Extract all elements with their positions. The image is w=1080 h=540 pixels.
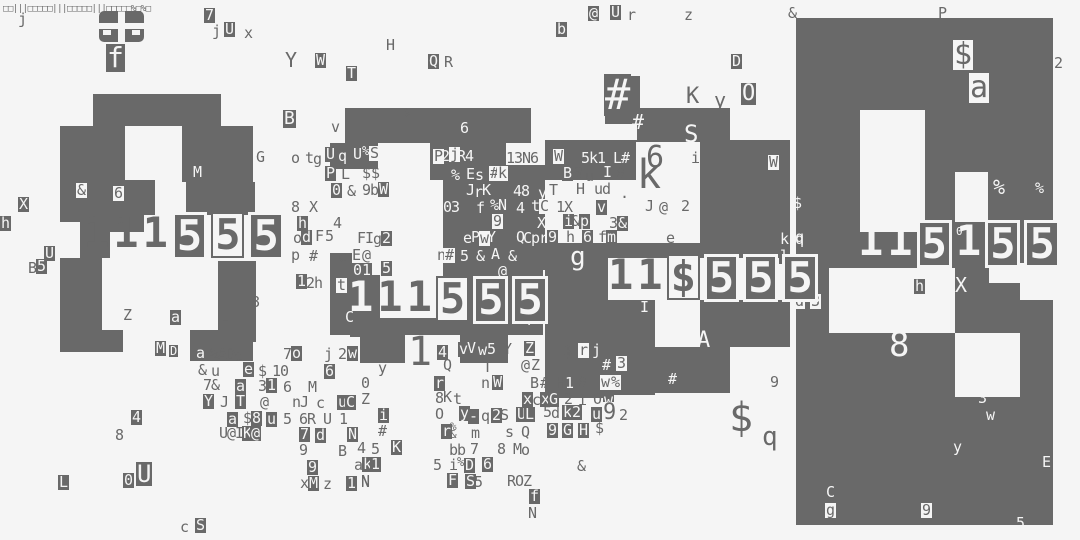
glyph: 9: [602, 402, 617, 424]
glyph: U: [610, 5, 621, 20]
big-digit: 1: [887, 220, 912, 262]
glyph: r: [627, 8, 636, 23]
glyph: 6: [482, 457, 493, 472]
glyph: L: [58, 475, 69, 490]
glyph: v: [331, 120, 340, 135]
glyph: 4: [131, 410, 142, 425]
block-rect: [60, 330, 123, 352]
glyph: 9: [770, 375, 779, 390]
glyph: %: [993, 177, 1005, 197]
glyph: $: [729, 398, 753, 438]
window-grid-bar: [103, 30, 111, 35]
glyph: O: [435, 407, 444, 422]
glyph: y: [714, 90, 726, 110]
glyph: 7: [299, 427, 310, 442]
glyph: 1: [346, 476, 357, 491]
glyph: O: [741, 83, 756, 105]
glyph: 4: [516, 201, 525, 216]
glyph: K: [686, 86, 699, 108]
glyph: L: [524, 407, 535, 422]
glyph: L: [341, 167, 350, 182]
digit-cluster-3: 11$555: [608, 254, 818, 302]
block-rect: [93, 94, 221, 126]
glyph: H: [386, 38, 395, 53]
glyph: F: [447, 473, 458, 488]
glyph: #: [540, 376, 549, 391]
big-digit: 5: [704, 254, 739, 302]
glyph: B: [530, 376, 539, 391]
glyph: j: [592, 343, 601, 358]
glyph: S: [500, 408, 509, 423]
glyph: 9: [307, 460, 318, 475]
glyph: 5: [1016, 516, 1025, 531]
glyph: P: [938, 6, 947, 21]
glyph: k: [779, 232, 790, 247]
glyph: 2: [681, 199, 690, 214]
glyph: J: [220, 395, 229, 410]
glyph: 1: [597, 151, 606, 166]
glyph: 3: [616, 356, 627, 371]
big-digit: 1: [407, 276, 432, 318]
big-digit: 1: [858, 220, 883, 262]
glyph: %: [610, 375, 621, 390]
glyph: g: [825, 503, 836, 518]
glyph: v: [596, 200, 607, 215]
block-rect: [545, 258, 608, 398]
glyph: e: [243, 362, 254, 377]
glyph: U: [323, 412, 332, 427]
glyph: s: [505, 425, 514, 440]
glyph: G: [256, 150, 265, 165]
glyph: @: [250, 426, 261, 441]
glyph: 2: [619, 408, 628, 423]
glyph: $: [563, 344, 572, 359]
glyph: g: [570, 244, 586, 270]
block-hole: [1020, 263, 1053, 300]
glyph: @: [588, 6, 599, 21]
glyph: #: [378, 424, 387, 439]
block-rect: [345, 108, 531, 143]
glyph: 9: [547, 230, 558, 245]
glyph: &: [577, 459, 586, 474]
glyph: C: [539, 199, 550, 214]
glyph: Z: [531, 358, 540, 373]
big-digit: 5: [473, 276, 508, 324]
glyph: I: [640, 300, 649, 315]
glyph: c: [316, 396, 325, 411]
glyph: 5: [283, 412, 292, 427]
glyph: #: [632, 112, 644, 132]
glyph: i: [691, 151, 700, 166]
glyph: X: [309, 200, 318, 215]
glyph: %: [1035, 181, 1044, 196]
big-digit: 5: [211, 212, 244, 258]
glyph: N: [498, 198, 507, 213]
glyph: 1: [266, 378, 277, 393]
glyph: 5: [36, 259, 47, 274]
glyph: y: [953, 440, 962, 455]
glyph: T: [346, 66, 357, 81]
glyph: w: [986, 408, 995, 423]
glyph: 9: [299, 443, 308, 458]
glyph: 2: [338, 347, 347, 362]
glyph: A: [697, 330, 710, 352]
glyph: f: [529, 489, 540, 504]
digit-cluster-2: 111555: [348, 276, 548, 324]
glyph: f: [106, 44, 125, 72]
glyph: &: [450, 429, 457, 440]
glyph: 9: [921, 503, 932, 518]
big-digit: 1: [377, 276, 402, 318]
glyph: &: [347, 184, 356, 199]
window-grid-bar: [99, 23, 144, 29]
glyph: -: [468, 409, 479, 424]
glyph: 8: [616, 166, 625, 181]
glyph: H: [576, 182, 585, 197]
glyph: q: [795, 230, 804, 245]
glyph: 0: [331, 183, 342, 198]
glyph: 3: [574, 166, 583, 181]
glyph: w: [478, 343, 487, 358]
big-digit: 1: [348, 276, 373, 318]
glyph: d: [602, 182, 611, 197]
glyph: F: [315, 229, 324, 244]
big-digit: 1: [143, 212, 168, 254]
glyph: 1: [564, 376, 575, 391]
glyph: H: [578, 423, 589, 438]
big-digit: 5: [782, 254, 817, 302]
big-digit: 1: [608, 254, 633, 296]
glyph: 8: [251, 295, 260, 310]
glyph: P: [325, 166, 336, 181]
big-digit: 1: [956, 220, 981, 262]
glyph: o: [291, 346, 302, 361]
glyph: 6: [113, 186, 124, 201]
glyph: Z: [524, 341, 535, 356]
block-rect: [700, 300, 790, 347]
glyph: n: [481, 376, 490, 391]
glyph: s: [402, 105, 411, 120]
glyph: j: [212, 24, 221, 39]
big-digit: 5: [248, 212, 283, 260]
glyph: S: [684, 122, 698, 146]
glyph: o: [291, 151, 300, 166]
glyph: 0: [361, 376, 370, 391]
glyph: N: [528, 506, 537, 521]
glyph: @: [260, 395, 269, 410]
glyph: a: [195, 346, 206, 361]
glyph: W: [315, 53, 326, 68]
glyph: &: [508, 249, 517, 264]
glyph: w: [347, 346, 358, 361]
glyph: 8: [497, 442, 506, 457]
glyph: 5: [433, 458, 442, 473]
glyph: W: [492, 375, 503, 390]
window-grid-icon: [99, 11, 144, 42]
glyph: 2: [571, 405, 582, 420]
glyph: 8: [521, 184, 530, 199]
glyph: T: [235, 394, 246, 409]
glyph: 4: [437, 345, 448, 360]
big-digit: 5: [172, 212, 207, 260]
glyph: K: [391, 440, 402, 455]
glyph: U: [325, 147, 336, 162]
glyph: J: [645, 199, 654, 214]
glyph: D: [169, 345, 178, 357]
glyph: C: [345, 395, 356, 410]
glyph: e: [234, 349, 243, 364]
glyph: 5: [487, 342, 496, 357]
glyph: V: [467, 341, 476, 356]
glyph: %: [451, 168, 460, 183]
glyph: y: [378, 361, 387, 376]
glyph: e: [666, 231, 675, 246]
block-hole: [829, 268, 955, 333]
glyph: S: [195, 518, 206, 533]
glyph: 6: [460, 121, 469, 136]
glyph: D: [464, 458, 475, 473]
glyph: 0: [280, 364, 289, 379]
glyph: Q: [521, 425, 530, 440]
glyph: 5: [325, 229, 334, 244]
glyph: i: [378, 408, 389, 423]
glyph: g: [313, 152, 322, 167]
glyph: Y: [503, 342, 512, 357]
glyph: E: [1042, 455, 1051, 470]
glyph: &: [476, 249, 485, 264]
glyph: 3: [451, 200, 460, 215]
big-digit: 5: [917, 220, 952, 268]
glyph: Z: [123, 308, 132, 323]
glyph: U: [136, 462, 152, 486]
glyph: o: [521, 443, 530, 458]
glyph: f: [476, 201, 485, 216]
digit-cluster-4: 115155: [858, 220, 1060, 268]
glyph: 4: [333, 216, 342, 231]
glyph: &: [211, 378, 220, 393]
glyph: q: [762, 424, 778, 450]
glyph: X: [18, 197, 29, 212]
glyph: 8: [578, 375, 587, 390]
glyph: E: [466, 167, 475, 182]
glyph: z: [684, 8, 693, 23]
glyph: &: [788, 6, 797, 21]
glyph: d: [315, 428, 326, 443]
big-digit: 5: [1024, 220, 1059, 268]
big-digit: 1: [84, 212, 109, 254]
glyph: 7: [204, 8, 215, 23]
glyph: .: [620, 186, 629, 201]
glyph: j: [18, 12, 27, 27]
glyph: t: [336, 278, 347, 293]
glyph: 5: [460, 249, 469, 264]
glyph: c: [180, 520, 189, 535]
glyph: h: [914, 279, 925, 294]
glyph: Z: [361, 392, 370, 407]
glyph: z: [323, 477, 332, 492]
glyph: #: [602, 358, 611, 373]
glyph: x: [244, 26, 253, 41]
glyph: 1: [339, 412, 348, 427]
glyph: #: [668, 372, 677, 387]
glyph: r: [578, 343, 589, 358]
glyph: 6: [283, 380, 292, 395]
glyph: 3: [978, 391, 987, 406]
glyph: h: [0, 216, 11, 231]
glyph: M: [193, 165, 202, 180]
glyph: j: [324, 347, 333, 362]
glyph: G: [562, 423, 573, 438]
glyph: Y: [203, 394, 214, 409]
glyph: A: [490, 247, 501, 262]
glyph: $: [953, 40, 973, 70]
glyph: 9: [547, 423, 558, 438]
glyph: h: [314, 276, 323, 291]
glyph: 8: [115, 428, 124, 443]
glyph: $: [371, 166, 380, 181]
glyph: 4: [357, 441, 366, 456]
glyph: d: [551, 406, 560, 421]
glyph: q: [481, 409, 490, 424]
big-digit: 5: [512, 276, 547, 324]
big-digit: 5: [985, 220, 1020, 268]
glyph: M: [308, 380, 317, 395]
glyph: W: [378, 182, 389, 197]
glyph: 1: [370, 457, 381, 472]
glyph: m: [471, 426, 480, 441]
glyph: Q: [428, 54, 439, 69]
glyph: 2: [1054, 56, 1063, 71]
glyph: 8: [291, 200, 300, 215]
glyph: S: [369, 146, 380, 161]
glyph: k: [497, 166, 508, 181]
big-digit: 1: [637, 254, 662, 296]
glyph: @: [521, 358, 530, 373]
glyph: 0: [123, 473, 134, 488]
glyph: &: [76, 183, 87, 198]
big-digit: 5: [436, 276, 469, 322]
glyph: W: [553, 149, 564, 164]
glyph: @: [659, 200, 668, 215]
glyph: J: [300, 395, 309, 410]
glyph: p: [291, 248, 300, 263]
glyph: &: [617, 216, 628, 231]
glyph: u: [266, 412, 277, 427]
block-rect: [60, 126, 125, 182]
big-digit: $: [667, 254, 700, 300]
noise-canvas: □□|||□□□□□|||□□□□□|||□□□□□%□%□j7jUxfYWTH…: [0, 0, 1080, 540]
glyph: B: [338, 444, 347, 459]
block-hole: [860, 110, 925, 232]
glyph: m: [606, 230, 617, 245]
glyph: T: [483, 360, 492, 375]
glyph: 4: [465, 149, 474, 164]
glyph: #: [621, 151, 630, 166]
glyph: k: [637, 155, 661, 195]
big-digit: 5: [743, 254, 778, 302]
glyph: 8: [889, 328, 909, 362]
glyph: #: [444, 248, 455, 263]
glyph: c: [338, 250, 347, 265]
glyph: 9: [492, 214, 503, 229]
block-rect: [60, 258, 102, 338]
glyph: $: [362, 166, 371, 181]
glyph: Y: [285, 50, 297, 70]
glyph: a: [969, 73, 989, 103]
glyph: 5: [474, 475, 483, 490]
block-hole: [955, 333, 1020, 397]
glyph: p: [579, 214, 590, 229]
glyph: 6: [324, 364, 335, 379]
glyph: I: [602, 165, 613, 180]
glyph: Y: [487, 230, 496, 245]
glyph: N: [361, 474, 370, 489]
glyph: B: [283, 110, 296, 128]
glyph: C: [826, 485, 835, 500]
glyph: W: [768, 155, 779, 170]
glyph: a: [170, 310, 181, 325]
window-grid-bar: [132, 30, 140, 35]
glyph: q: [337, 149, 348, 164]
big-digit: 1: [113, 212, 138, 254]
digit-cluster-1: 111555: [84, 212, 284, 260]
glyph: u: [585, 169, 594, 184]
glyph: 1: [408, 332, 432, 372]
glyph: R: [444, 55, 453, 70]
glyph: L: [220, 310, 229, 325]
glyph: M: [308, 476, 319, 491]
glyph: b: [556, 22, 567, 37]
glyph: 6: [530, 151, 539, 166]
glyph: U: [224, 22, 235, 37]
glyph: d: [301, 230, 312, 245]
glyph: 2: [381, 231, 392, 246]
glyph: T: [548, 183, 559, 198]
glyph: M: [155, 341, 166, 356]
glyph: D: [731, 54, 742, 69]
glyph: K: [443, 390, 452, 405]
glyph: #: [604, 74, 631, 116]
glyph: 7: [470, 442, 479, 457]
glyph: X: [955, 275, 967, 295]
glyph: #: [309, 249, 318, 264]
glyph: B: [562, 166, 573, 181]
glyph: $: [595, 421, 604, 436]
glyph: $: [793, 196, 802, 211]
